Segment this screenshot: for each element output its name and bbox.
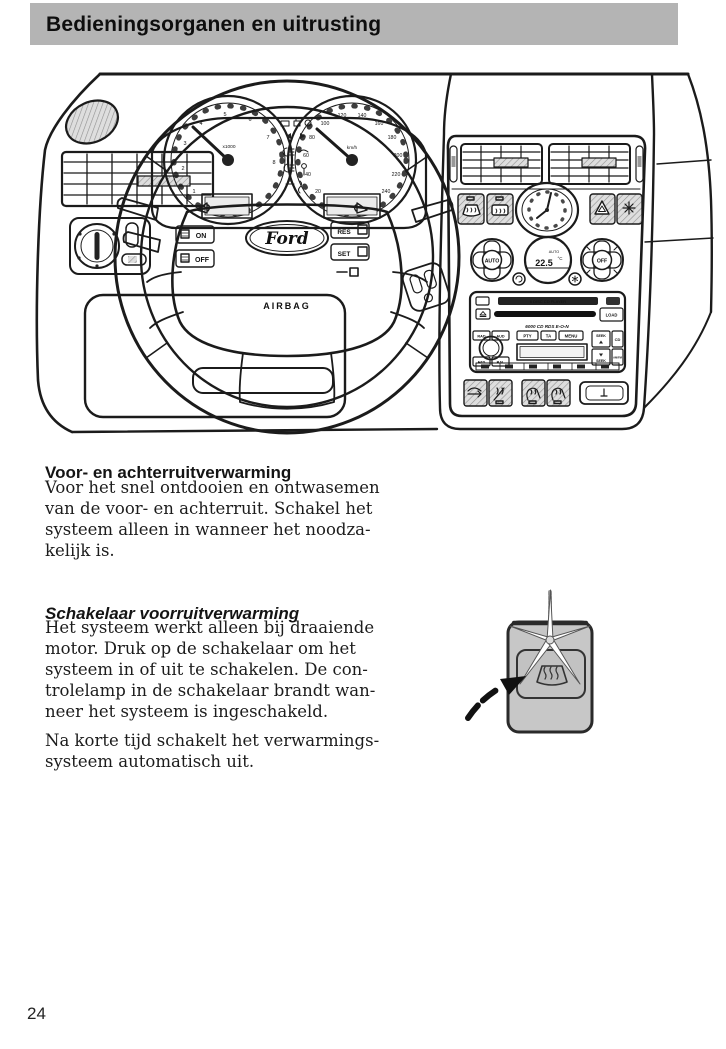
cruise-control-right-buttons: RES SET xyxy=(331,222,369,276)
speedo-number: 220 xyxy=(392,172,401,178)
ford-logo: Ford xyxy=(246,221,328,255)
tweeter-grille xyxy=(59,92,125,151)
speedo-number: 240 xyxy=(382,189,391,195)
defrost-switch-illustration xyxy=(440,578,640,748)
cd-slot-label: 6 DISC CD PLAYER xyxy=(530,299,566,304)
paragraph: Het systeem werkt alleen bij draaiende m… xyxy=(45,617,390,722)
console-lower-buttons xyxy=(464,380,628,406)
temperature-display: AUTO 22.5 °C xyxy=(525,237,571,283)
speedo-number: 140 xyxy=(358,113,367,119)
speedo-number: 180 xyxy=(388,135,397,141)
cruise-icon xyxy=(181,230,189,238)
analog-clock xyxy=(516,183,578,237)
tacho-number: 4 xyxy=(199,121,202,127)
text-line: motor. Druk op de schakelaar om het xyxy=(45,638,390,659)
seek-label: SEEK xyxy=(596,334,606,338)
cd-button-label: CD xyxy=(615,337,621,342)
pty-label: PTY xyxy=(523,334,531,339)
text-line: systeem automatisch uit. xyxy=(45,751,390,772)
text-line: systeem in of uit te schakelen. De con- xyxy=(45,659,390,680)
off-knob: OFF xyxy=(581,239,623,281)
radio-model-label: 6000 CD RDS E-O-N xyxy=(525,324,569,329)
cruise-minus-icon xyxy=(337,268,358,276)
lighter-icon xyxy=(601,389,607,396)
speedo-number: 20 xyxy=(315,189,321,195)
paragraph: Voor het snel ontdooien en ontwasemen va… xyxy=(45,477,390,561)
wiper-stalk xyxy=(412,200,453,222)
cruise-icon xyxy=(181,254,189,262)
load-label: LOAD xyxy=(606,313,618,318)
auto-knob-label: AUTO xyxy=(485,259,500,265)
heated-seat-right-switch xyxy=(547,380,570,406)
heated-windscreen-icon xyxy=(537,666,567,685)
speedo-number: 80 xyxy=(309,135,315,141)
text-line: systeem alleen in wanneer het noodza- xyxy=(45,519,390,540)
speedo-number: 40 xyxy=(305,172,311,178)
radio-top-button xyxy=(476,297,489,305)
chapter-header-bar: Bedieningsorganen en uitrusting xyxy=(30,3,678,45)
text-line: trolelamp in de schakelaar brandt wan- xyxy=(45,680,390,701)
paragraph: Na korte tijd schakelt het verwarmings- … xyxy=(45,730,390,772)
recirculation-button xyxy=(513,273,525,285)
recirculation-switch xyxy=(464,380,487,406)
speedo-needle xyxy=(317,129,352,160)
seek-down-icon xyxy=(599,354,603,357)
text-line: Na korte tijd schakelt het verwarmings- xyxy=(45,730,390,751)
ford-wordmark: Ford xyxy=(264,229,308,249)
seek-label: SEEK xyxy=(596,359,606,363)
temperature-unit: °C xyxy=(557,256,563,261)
text-line: Het systeem werkt alleen bij draaiende xyxy=(45,617,390,638)
cruise-off-label: OFF xyxy=(195,257,210,264)
heated-rear-window-icon xyxy=(492,205,508,215)
cd-slot xyxy=(494,311,596,317)
manual-page: Bedieningsorganen en uitrusting xyxy=(0,0,726,1049)
seatbelt-icon xyxy=(302,164,307,169)
cruise-icon xyxy=(358,225,367,234)
seek-up-icon xyxy=(599,341,603,344)
storage-handle xyxy=(193,368,333,393)
tacho-number: 7 xyxy=(266,135,269,141)
text-line: van de voor- en achterruit. Schakel het xyxy=(45,498,390,519)
heated-seat-left-switch xyxy=(522,380,545,406)
cruise-icon xyxy=(358,247,367,256)
temperature-value: 22.5 xyxy=(535,258,553,268)
radio-unit: 6 DISC CD PLAYER LOAD 6000 CD RDS E-O-N … xyxy=(470,292,625,372)
text-line: Voor het snel ontdooien en ontwasemen xyxy=(45,477,390,498)
cruise-res-label: RES xyxy=(337,229,351,236)
climate-control: AUTO AUTO 22.5 °C OFF xyxy=(471,237,623,285)
text-line: kelijk is. xyxy=(45,540,390,561)
tacho-multiplier-label: x1000 xyxy=(222,144,235,150)
off-knob-label: OFF xyxy=(597,259,607,265)
eject-button xyxy=(476,309,490,319)
clock-minute-hand xyxy=(547,193,551,210)
tacho-number: 8 xyxy=(272,160,275,166)
speedo-number: 100 xyxy=(321,121,330,127)
airbag-label: AIRBAG xyxy=(263,301,311,311)
page-number: 24 xyxy=(27,1004,46,1024)
text-line: neer het systeem is ingeschakeld. xyxy=(45,701,390,722)
climate-mode-label: AUTO xyxy=(549,250,560,254)
tacho-number: 5 xyxy=(223,112,226,118)
cruise-set-label: SET xyxy=(338,251,351,258)
oil-icon xyxy=(300,150,308,152)
vent-slider xyxy=(494,158,528,167)
dashboard-illustration: 1 2 3 4 5 6 7 8 x1000 xyxy=(0,60,726,445)
chapter-title: Bedieningsorganen en uitrusting xyxy=(30,3,678,46)
tacho-needle xyxy=(193,127,228,160)
starburst-icon xyxy=(623,202,635,214)
cruise-on-label: ON xyxy=(196,233,207,240)
amfm-label: AM/FM xyxy=(613,356,623,360)
speedo-number: 160 xyxy=(375,121,384,127)
ta-label: TA xyxy=(546,334,551,339)
cruise-control-left-buttons: ON OFF xyxy=(176,226,214,267)
tacho-number: 2 xyxy=(181,166,184,172)
console-upper-buttons xyxy=(458,183,642,237)
auto-knob: AUTO xyxy=(471,239,513,281)
tacho-number: 3 xyxy=(183,141,186,147)
vent-slider xyxy=(582,158,616,167)
tacho-number: 1 xyxy=(192,189,195,195)
center-console: AUTO AUTO 22.5 °C OFF xyxy=(448,136,645,416)
speedo-number: 60 xyxy=(303,153,309,159)
eject-icon xyxy=(480,312,486,317)
brand-mark xyxy=(606,297,620,305)
speed-unit-label: km/h xyxy=(347,145,358,151)
tacho-number: 6 xyxy=(248,117,251,123)
menu-label: MENU xyxy=(565,334,578,339)
